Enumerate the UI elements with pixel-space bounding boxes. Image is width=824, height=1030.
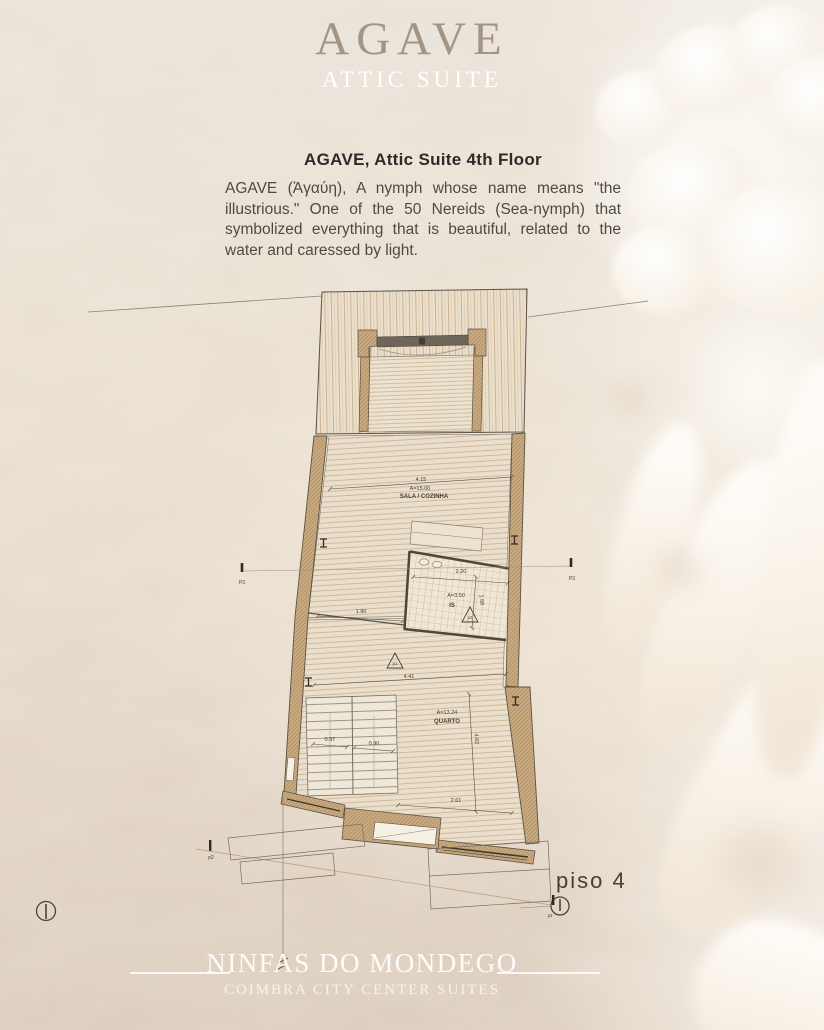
page-title: AGAVE xyxy=(0,16,824,63)
washbasin xyxy=(420,559,429,565)
section-marker-left: P3 xyxy=(239,580,245,586)
quarto-room-label: QUARTO xyxy=(434,719,460,725)
roof-terrace xyxy=(316,289,527,434)
sala-area: A=15.00 xyxy=(410,486,431,492)
is-width-dim: 2.20 xyxy=(456,569,467,575)
brochure-page: AGAVE ATTIC SUITE AGAVE, Attic Suite 4th… xyxy=(0,0,824,1030)
washbasin xyxy=(433,561,442,567)
suite-description: AGAVE (Ἀγαύη), A nymph whose name means … xyxy=(225,179,621,261)
statue-shape xyxy=(628,140,768,250)
floor-plan-drawing: 4.15 A=15.00 SALA / COZINHA P3 P3 2.20 A… xyxy=(0,270,824,1030)
quarto-area: A=13.24 xyxy=(437,710,458,716)
datum-p3-label: p3 xyxy=(548,913,553,918)
intro-section: AGAVE, Attic Suite 4th Floor AGAVE (Ἀγαύ… xyxy=(225,150,621,261)
quarto-height-dim: 4.62 xyxy=(473,733,480,744)
suite-heading: AGAVE, Attic Suite 4th Floor xyxy=(225,150,621,170)
quarto-width-dim: 4.41 xyxy=(404,674,415,680)
sala-room-label: SALA / COZINHA xyxy=(400,494,449,500)
bottom-dim: 2.61 xyxy=(451,798,462,804)
stair-left-dim: 0.97 xyxy=(325,737,336,743)
stair-right-dim: 0.90 xyxy=(369,741,380,747)
brand-name: NINFAS DO MONDEGO xyxy=(0,948,724,979)
is-room-label: IS xyxy=(449,603,455,609)
footer: NINFAS DO MONDEGO COIMBRA CITY CENTER SU… xyxy=(0,948,724,999)
triangle-p2-label: p2 xyxy=(468,615,473,620)
sala-width-dim: 4.15 xyxy=(416,477,427,483)
door-dim: 1.90 xyxy=(356,609,367,615)
section-marker-right: P3 xyxy=(569,576,575,582)
datum-p2-label: p2 xyxy=(208,855,214,861)
is-area: A=3.50 xyxy=(447,593,465,599)
is-height-dim: 1.58 xyxy=(478,594,485,605)
page-subtitle: ATTIC SUITE xyxy=(0,67,824,93)
staircase xyxy=(306,695,398,796)
brand-tagline: COIMBRA CITY CENTER SUITES xyxy=(0,982,724,999)
triangle-p1-label: p1 xyxy=(393,661,398,666)
header: AGAVE ATTIC SUITE xyxy=(0,16,824,93)
floor-level-label: piso 4 xyxy=(556,868,627,893)
